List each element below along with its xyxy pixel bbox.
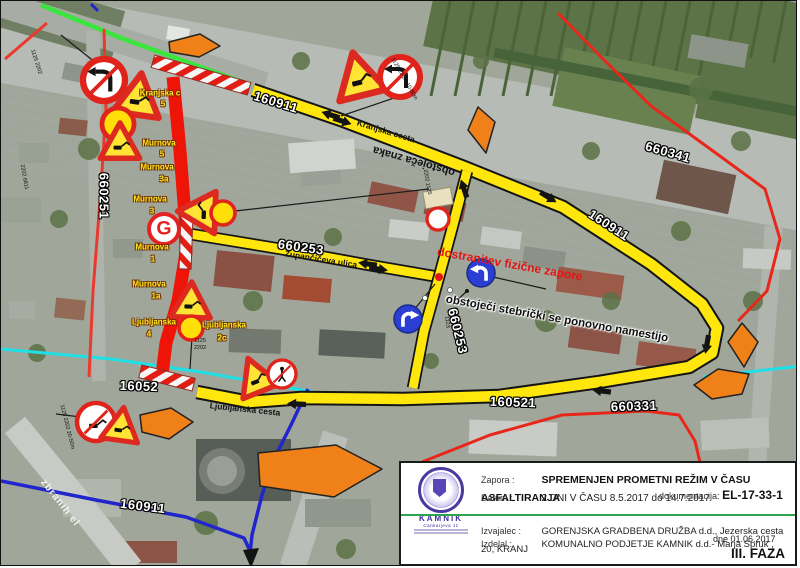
sign-ycirc	[179, 316, 203, 340]
marker-dot	[423, 296, 428, 301]
dne-value: dne 01.06.2017	[713, 534, 776, 544]
leader-line	[453, 291, 467, 304]
kamnik-logo: KAMNIK Cankarjeva 11	[406, 467, 476, 535]
faza-label: III. FAZA	[731, 546, 785, 561]
dokumentacija-label: dokumentacija:	[659, 491, 720, 501]
sign-noped	[268, 360, 296, 388]
orange-arrow-right-small	[140, 408, 193, 439]
orange-arrow-down-right	[728, 323, 758, 367]
sign-blueR	[394, 305, 422, 333]
orange-arrow-left-right	[694, 369, 749, 399]
dokumentacija-value: EL-17-33-1	[722, 488, 783, 502]
sign-ycirc	[211, 201, 235, 225]
zapora-label: Zapora :	[481, 475, 537, 485]
marker-dot	[465, 289, 469, 293]
datum-label: Datum :	[481, 493, 537, 503]
orange-arrow-right-bottom	[258, 445, 382, 497]
traffic-plan-sheet: G Kranjska c5Murnova5Murnova3aMurnova3Mu…	[0, 0, 800, 568]
divider-line	[401, 514, 795, 516]
title-block: KAMNIK Cankarjeva 11 Zapora : SPREMENJEN…	[399, 461, 797, 566]
dokumentacija: dokumentacija: EL-17-33-1	[659, 488, 783, 502]
izdelal-label: Izdelal :	[481, 539, 537, 549]
sign-noleft	[380, 57, 420, 97]
sign-gcirc: G	[149, 214, 179, 244]
leader-line	[493, 277, 546, 289]
marker-dot	[448, 288, 453, 293]
logo-phone-line	[414, 529, 468, 531]
kamnik-emblem-icon	[418, 467, 464, 513]
sign-blueL	[467, 259, 495, 287]
road-closure-barrier	[179, 217, 193, 269]
sign-noleft	[83, 59, 125, 101]
logo-address: Cankarjeva 11	[406, 523, 476, 528]
blue-route-arrowhead	[243, 548, 259, 565]
shield-icon	[433, 479, 446, 497]
marker-dot	[435, 273, 443, 281]
svg-text:G: G	[156, 217, 171, 239]
sign-wcirc	[427, 208, 449, 230]
logo-fax-line	[414, 532, 468, 534]
